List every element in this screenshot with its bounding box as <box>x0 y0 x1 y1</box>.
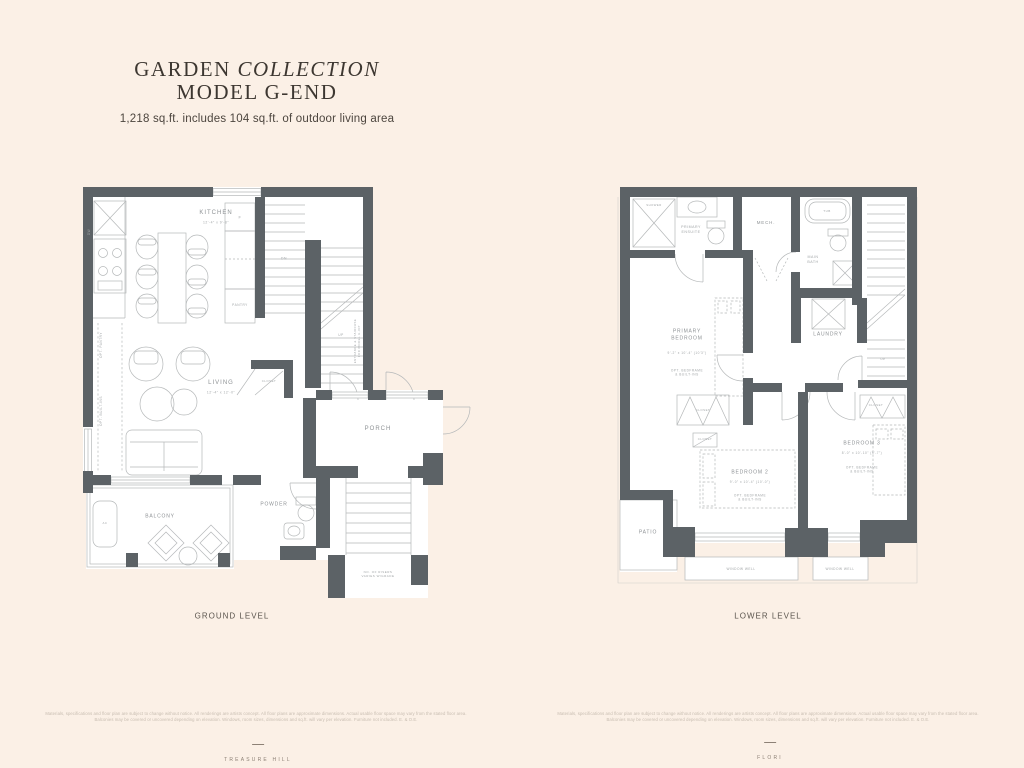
label-primary-ensuite: PRIMARY ENSUITE <box>681 225 701 235</box>
lower-level-plan: SHOWER PRIMARY ENSUITE MECH. TUB MAIN BA… <box>615 183 930 598</box>
page-subtitle: 1,218 sq.ft. includes 104 sq.ft. of outd… <box>0 113 514 125</box>
brand-right-name: FLORI <box>757 755 783 761</box>
flori-logo-mark <box>764 742 776 743</box>
label-stairs-up-lower: UP <box>880 357 885 361</box>
label-closet-bedroom2: CLOSET <box>698 438 713 442</box>
label-living: LIVING <box>208 379 234 387</box>
label-mech: MECH. <box>757 220 776 226</box>
label-ac-unit: AC <box>102 522 107 526</box>
label-shower: SHOWER <box>646 204 662 208</box>
label-fridge: F <box>239 214 242 219</box>
label-stairs-up: UP <box>338 333 343 337</box>
lower-plan-drawing <box>615 183 930 598</box>
label-closet-ground: CLOSET <box>262 380 277 384</box>
title-regular: GARDEN <box>134 57 231 81</box>
disclaimer-right: Materials, specifications and floor plan… <box>556 711 980 723</box>
label-patio: PATIO <box>639 530 657 537</box>
title-italic: COLLECTION <box>238 57 380 81</box>
label-stair-note: ENTRANCE & STAIRCASE FOR MODEL U-INT <box>354 319 362 363</box>
label-primary-opt: OPT. BEDFRAME & BUILT-INS <box>671 369 703 378</box>
label-stairs-dn: DN <box>281 257 287 262</box>
disclaimer-left: Materials, specifications and floor plan… <box>44 711 468 723</box>
label-porch: PORCH <box>365 425 392 433</box>
label-bedroom3-opt: OPT. BEDFRAME & BUILT-INS <box>846 466 878 475</box>
brochure-page: { "page": { "title_regular": "GARDEN", "… <box>0 0 1024 768</box>
brand-left-name: TREASURE HILL <box>224 757 292 763</box>
label-primary-bedroom: PRIMARY BEDROOM <box>671 328 702 342</box>
label-closet-primary: CLOSET <box>696 409 711 413</box>
disclaimer-left-line2: Balconies may be covered or uncovered de… <box>44 717 468 723</box>
disclaimer-right-line2: Balconies may be covered or uncovered de… <box>556 717 980 723</box>
label-dishwasher: DW <box>87 229 91 235</box>
label-window-well-2: WINDOW WELL <box>825 567 854 571</box>
label-closet-bedroom3: CLOSET <box>869 404 884 408</box>
label-bedroom2-opt: OPT. BEDFRAME & BUILT-INS <box>734 494 766 503</box>
ground-level-plan: KITCHEN 12'-4" x 9'-8" DW F PANTRY OPT. … <box>78 183 488 615</box>
ground-plan-drawing <box>78 183 488 615</box>
label-living-dims: 12'-4" x 12'-0" <box>207 391 235 396</box>
label-balcony: BALCONY <box>145 514 175 521</box>
label-risers-note: NO. OF RISERS VARIES W/GRADE <box>362 570 395 578</box>
label-powder: POWDER <box>260 502 287 509</box>
label-opt-pantry: OPT. PANTRY <box>99 332 103 358</box>
label-window-well-1: WINDOW WELL <box>726 567 755 571</box>
label-bedroom3: BEDROOM 3 <box>843 441 880 448</box>
label-bedroom2-dims: 9'-0" x 10'-4" (10'-0") <box>730 480 770 484</box>
label-bedroom3-dims: 8'-0" x 10'-10" (9'-7") <box>842 451 882 455</box>
brand-flori: FLORI <box>757 742 783 764</box>
label-kitchen: KITCHEN <box>199 209 232 217</box>
label-main-bath: MAIN BATH <box>807 255 818 265</box>
page-title: GARDEN COLLECTION <box>0 58 514 81</box>
label-laundry: LAUNDRY <box>813 332 842 339</box>
title-block: GARDEN COLLECTION MODEL G-END 1,218 sq.f… <box>0 58 514 125</box>
label-tub: TUB <box>823 209 831 213</box>
label-pantry: PANTRY <box>232 303 248 307</box>
brand-treasure-hill: TREASURE HILL <box>224 744 292 766</box>
treasure-hill-logo-mark <box>252 744 264 745</box>
label-kitchen-dims: 12'-4" x 9'-8" <box>203 221 229 226</box>
page-title-model: MODEL G-END <box>0 81 514 104</box>
caption-ground-level: GROUND LEVEL <box>195 612 270 621</box>
label-primary-bedroom-dims: 9'-2" x 10'-4" (10'3") <box>668 351 707 355</box>
caption-lower-level: LOWER LEVEL <box>734 612 801 621</box>
label-opt-builtins: OPT. BUILT-INS <box>99 396 103 426</box>
label-bedroom2: BEDROOM 2 <box>731 470 768 477</box>
